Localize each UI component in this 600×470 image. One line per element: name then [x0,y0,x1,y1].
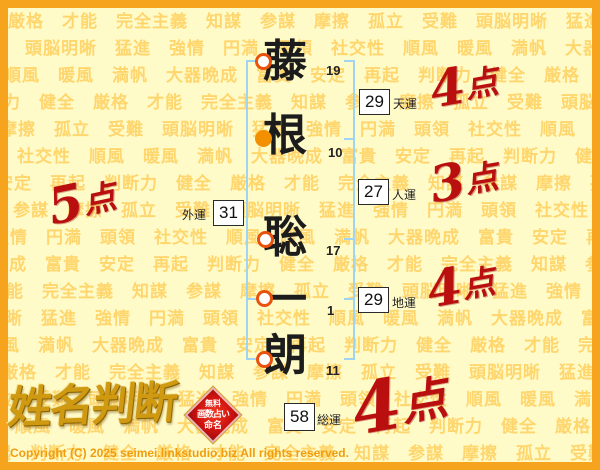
jinun-score-suffix: 点 [462,156,501,200]
gaiun-bracket [247,61,257,359]
stroke-count-1: 19 [326,63,340,78]
site-logo[interactable]: 姓名判断 [6,381,179,431]
tenun-value-box: 29 [359,89,390,115]
chiun-label: 地運 [392,294,416,311]
seal-text: 無料 画数占い 命名 [184,386,242,444]
chiun-score-suffix: 点 [459,261,498,305]
soun-label: 総運 [317,411,341,428]
char-marker-icon [256,290,273,307]
stroke-count-4: 1 [327,303,334,318]
tenun-label: 天運 [393,95,417,112]
soun-score-suffix: 点 [396,370,451,431]
stroke-count-2: 10 [328,145,342,160]
jinun-label: 人運 [392,186,416,203]
seal-line-3: 命名 [204,420,222,431]
tenun-score-suffix: 点 [462,61,501,105]
copyright-text: Copyright (C) 2025 seimei.linkstudio.biz… [10,446,349,460]
seal-line-2: 画数占い [197,409,229,420]
seal-line-1: 無料 [205,399,221,409]
free-fortune-seal[interactable]: 無料 画数占い 命名 [184,386,242,444]
char-marker-icon [255,53,272,70]
soun-value-box: 58 [284,403,315,431]
jinun-value-box: 27 [358,179,389,205]
seimei-handan-result-page: 厳格 才能 完全主義 知謀 参謀 摩擦 孤立 受難 頭脳明晰 猛進 強情 円満 … [0,0,600,470]
stroke-count-5: 11 [326,363,340,378]
gaiun-label: 外運 [182,206,206,223]
tenun-jinun-chiun-bracket [344,61,354,359]
char-marker-icon [256,351,273,368]
stroke-count-3: 17 [326,243,340,258]
char-marker-icon [255,130,272,147]
chiun-value-box: 29 [358,287,389,313]
char-marker-icon [257,231,274,248]
gaiun-value-box: 31 [213,200,244,226]
